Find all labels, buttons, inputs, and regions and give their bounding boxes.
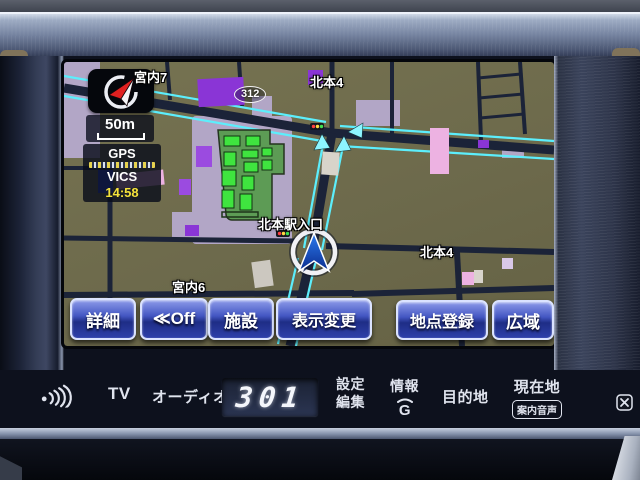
car-navi-screenshot: { "nav": { "status": { "scale": "50m", "… [0, 0, 640, 480]
channel-value: 301 [234, 381, 306, 414]
display-change-button[interactable]: 表示変更 [276, 298, 372, 340]
gps-label: GPS [108, 146, 135, 161]
info-button[interactable]: 情報 G [390, 376, 419, 421]
g-book-letter: G [398, 402, 410, 418]
settings-edit-line1: 設定 [336, 376, 365, 394]
traffic-light-icon [310, 123, 324, 130]
register-point-button[interactable]: 地点登録 [396, 300, 488, 340]
lower-metal-trim [0, 428, 640, 439]
facility-button[interactable]: 施設 [208, 298, 274, 340]
audio-button[interactable]: オーディオ [152, 386, 228, 407]
dashboard-metal-trim [0, 12, 640, 58]
scale-label: 50m [105, 116, 135, 133]
channel-display: 301 [222, 378, 318, 416]
vics-label: VICS [107, 169, 137, 184]
g-book-icon: G [394, 396, 416, 418]
guidance-voice-label: 案内音声 [512, 400, 562, 419]
x-mark-button[interactable] [616, 394, 633, 411]
current-location-label: 現在地 [512, 376, 562, 397]
bezel-left [0, 56, 64, 370]
bezel-right [554, 56, 640, 370]
dashboard-bottom [0, 439, 640, 480]
destination-button[interactable]: 目的地 [442, 386, 489, 407]
info-label: 情報 [390, 376, 419, 396]
settings-edit-button[interactable]: 設定 編集 [336, 376, 365, 411]
clock: 14:58 [105, 185, 138, 200]
vics-banner [89, 162, 155, 168]
control-panel: TV オーディオ 301 設定 編集 情報 G 目的地 現在地 案内音声 [26, 368, 638, 426]
map-label-junction-north: 北本4 [310, 76, 343, 89]
current-location-button[interactable]: 現在地 案内音声 [512, 376, 562, 419]
off-button[interactable]: ≪Off [140, 298, 208, 340]
detail-button[interactable]: 詳細 [70, 298, 136, 340]
volume-icon [39, 382, 85, 410]
scale-button[interactable]: 50m [86, 115, 154, 142]
settings-edit-line2: 編集 [336, 394, 365, 412]
map-label-junction-east: 北本4 [420, 246, 453, 259]
scale-bar [97, 133, 145, 140]
route-badge: 312 [234, 86, 266, 103]
map-label-area-sw: 宮内6 [172, 281, 205, 294]
navigation-screen: 50m GPS VICS 14:58 宮内7 312 北本4 北本駅入口 宮内6… [64, 62, 554, 346]
wide-area-button[interactable]: 広域 [492, 300, 554, 340]
map-label-station-entrance: 北本駅入口 [258, 218, 323, 231]
map-label-area-nw: 宮内7 [134, 71, 167, 84]
gps-status-panel: GPS VICS 14:58 [83, 144, 161, 202]
tv-button[interactable]: TV [108, 384, 131, 404]
